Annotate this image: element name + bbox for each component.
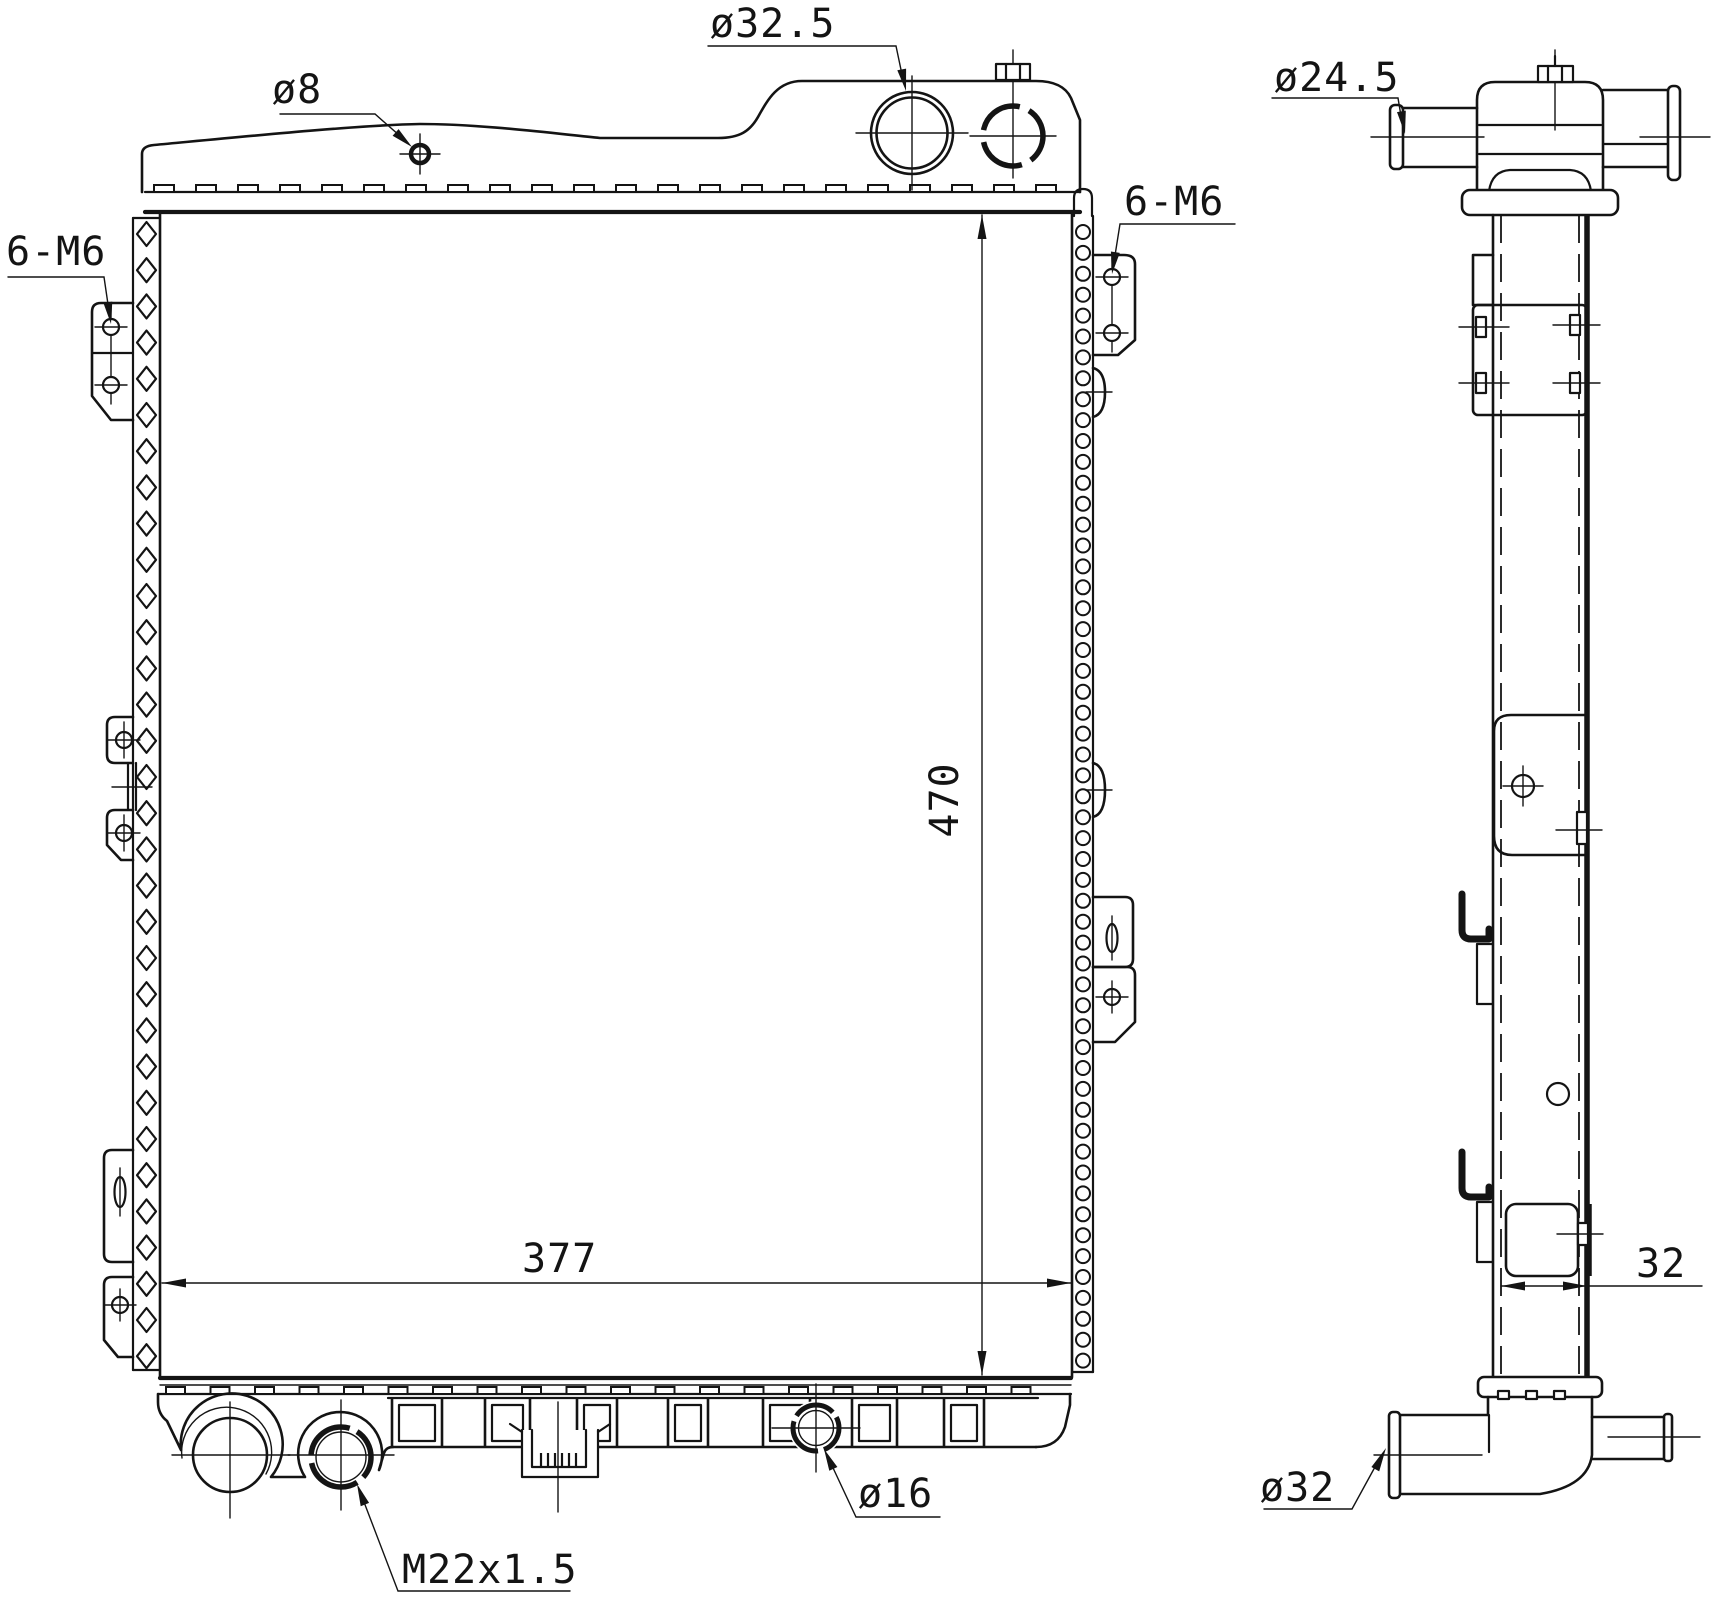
label-top-hole: ø8 xyxy=(272,67,322,113)
side-view: 32 ø24.5 ø32 xyxy=(1260,50,1710,1511)
filler-neck xyxy=(856,76,968,190)
drain-boss xyxy=(510,1402,610,1512)
leader-mount-right: 6-M6 xyxy=(1111,179,1235,274)
radiator-drawing: 470 377 ø8 ø32.5 6-M6 6-M6 xyxy=(0,0,1716,1600)
right-mount-bracket-lower xyxy=(1093,897,1135,1042)
label-outlet-pipe: ø32 xyxy=(1260,1465,1335,1511)
drain-plug-port xyxy=(288,1400,394,1510)
label-mount-left: 6-M6 xyxy=(6,229,106,275)
side-clip-upper xyxy=(1462,894,1493,1004)
right-side-channel xyxy=(1072,189,1093,1377)
leader-filler-neck: ø32.5 xyxy=(708,1,906,91)
technical-drawing-canvas: 470 377 ø8 ø32.5 6-M6 6-M6 xyxy=(0,0,1716,1600)
leader-inlet-pipe: ø24.5 xyxy=(1272,55,1406,134)
left-channel-holes xyxy=(137,222,156,1368)
dim-depth-32: 32 xyxy=(1501,1241,1702,1291)
label-inlet-pipe: ø24.5 xyxy=(1274,55,1399,101)
side-vent-hole xyxy=(1547,1083,1569,1105)
leader-small-outlet: ø16 xyxy=(824,1449,940,1517)
cap-side-icon xyxy=(1538,66,1573,82)
bottom-header-plate xyxy=(158,1378,1071,1394)
leader-drain-plug: M22x1.5 xyxy=(357,1484,578,1593)
right-bracket-lobes xyxy=(1086,368,1112,817)
label-small-outlet: ø16 xyxy=(858,1471,933,1517)
dim-depth-label: 32 xyxy=(1636,1241,1686,1287)
dim-width-377: 377 xyxy=(162,1236,1071,1288)
label-mount-right: 6-M6 xyxy=(1124,179,1224,225)
bottom-tank-channels xyxy=(392,1399,984,1447)
right-mount-bracket-top xyxy=(1093,255,1135,355)
lower-hose-seat xyxy=(172,1402,290,1518)
cap-icon xyxy=(996,64,1030,80)
dim-height-label: 470 xyxy=(922,762,968,837)
side-outlet-elbow xyxy=(1374,1397,1700,1498)
dim-height-470: 470 xyxy=(922,215,987,1375)
side-top-flange xyxy=(1462,190,1618,215)
side-bottom-flange xyxy=(1478,1377,1602,1399)
side-filler-pipe xyxy=(1603,86,1710,180)
right-channel-holes xyxy=(1076,225,1090,1368)
side-top-tank xyxy=(1477,50,1603,192)
side-lower-bracket xyxy=(1506,1204,1603,1276)
side-inlet-pipe xyxy=(1371,105,1484,169)
front-view: 470 377 ø8 ø32.5 6-M6 6-M6 xyxy=(6,1,1235,1593)
label-drain-plug: M22x1.5 xyxy=(402,1547,578,1593)
leader-mount-left: 6-M6 xyxy=(6,229,112,324)
leader-top-hole: ø8 xyxy=(272,67,412,147)
left-mount-bracket-bottom xyxy=(104,1150,136,1357)
overflow-port xyxy=(970,50,1056,178)
top-header-plate xyxy=(145,185,1080,212)
dim-width-label: 377 xyxy=(522,1236,597,1282)
label-filler-neck: ø32.5 xyxy=(710,1,835,47)
side-clip-lower xyxy=(1462,1152,1493,1262)
leader-outlet-pipe: ø32 xyxy=(1260,1448,1386,1511)
left-mount-bracket-top xyxy=(92,303,133,420)
